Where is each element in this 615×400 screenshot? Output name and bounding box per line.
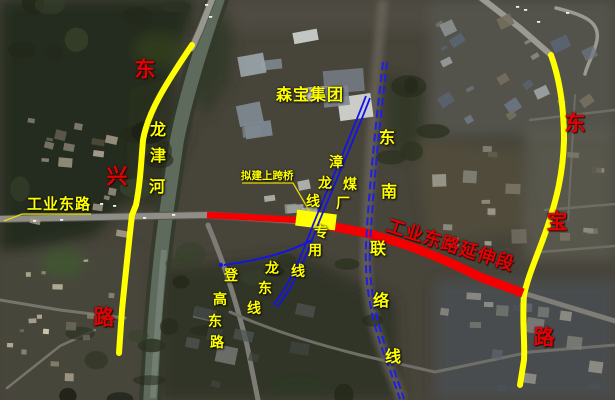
satellite-map: 森宝集团 工业东路 拟建上跨桥 工业东路延伸段 龙津河 东兴路 东宝路 漳龙线 … [0, 0, 615, 400]
branch-line-end [219, 263, 223, 267]
map-background [0, 0, 615, 400]
